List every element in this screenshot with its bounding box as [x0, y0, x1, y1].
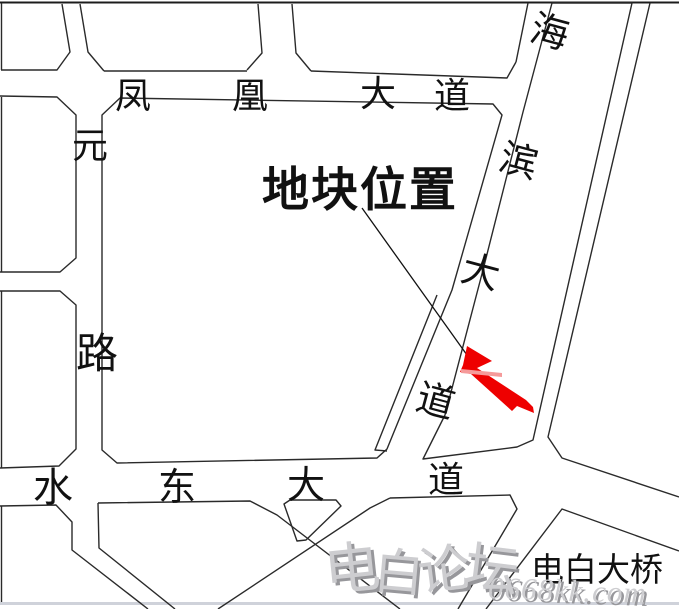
label-shuidong-char3: 大 [287, 465, 325, 507]
leader-line [362, 208, 472, 362]
road-edge-fenghuang-top-right [311, 62, 516, 78]
road-network [0, 3, 679, 609]
map-page: 凤 凰 大 道 元 路 海 滨 大 道 水 东 大 道 电白大桥 地块位置 电 … [0, 0, 679, 609]
label-fenghuang-char3: 大 [360, 74, 396, 114]
road-labels: 凤 凰 大 道 元 路 海 滨 大 道 水 东 大 道 [33, 8, 573, 510]
label-fenghuang-char1: 凤 [115, 76, 151, 116]
label-haibin-char2: 滨 [495, 137, 543, 187]
block-west-lower [0, 291, 76, 468]
label-yuanlu-char1: 元 [72, 126, 108, 166]
plot-annotation [362, 208, 534, 413]
block-west-upper [0, 96, 76, 272]
road-edge-stub-left [247, 4, 262, 70]
label-haibin-char3: 大 [457, 248, 505, 298]
road-edge-haibin-median-strip [375, 295, 437, 451]
label-shuidong-char2: 东 [158, 467, 196, 509]
map-canvas: 凤 凰 大 道 元 路 海 滨 大 道 水 东 大 道 电白大桥 地块位置 电 … [0, 0, 679, 609]
label-shuidong-char1: 水 [33, 465, 73, 510]
plot-marker [460, 346, 534, 413]
watermark-site: 0668kk.com [487, 570, 647, 609]
road-edge-yuanlu-bend-right [98, 503, 175, 609]
label-shuidong-char4: 道 [428, 460, 464, 500]
label-haibin-char1: 海 [526, 8, 574, 58]
label-fenghuang-char2: 凰 [232, 76, 268, 116]
label-haibin-char4: 道 [412, 377, 460, 427]
label-yuanlu-char2: 路 [76, 332, 118, 378]
label-fenghuang-char4: 道 [434, 76, 470, 116]
road-edge-stub-right [292, 4, 311, 71]
road-edge-haibin-left-top [516, 3, 528, 62]
plot-location-label: 地块位置 [262, 165, 458, 217]
road-edge-diagonal-right-bridge-top [548, 3, 679, 497]
road-edge-yuanlu-left-top [1, 4, 70, 70]
road-edge-yuanlu-right-top [80, 4, 104, 71]
road-edge-shuidong-bottom-west [0, 505, 148, 609]
